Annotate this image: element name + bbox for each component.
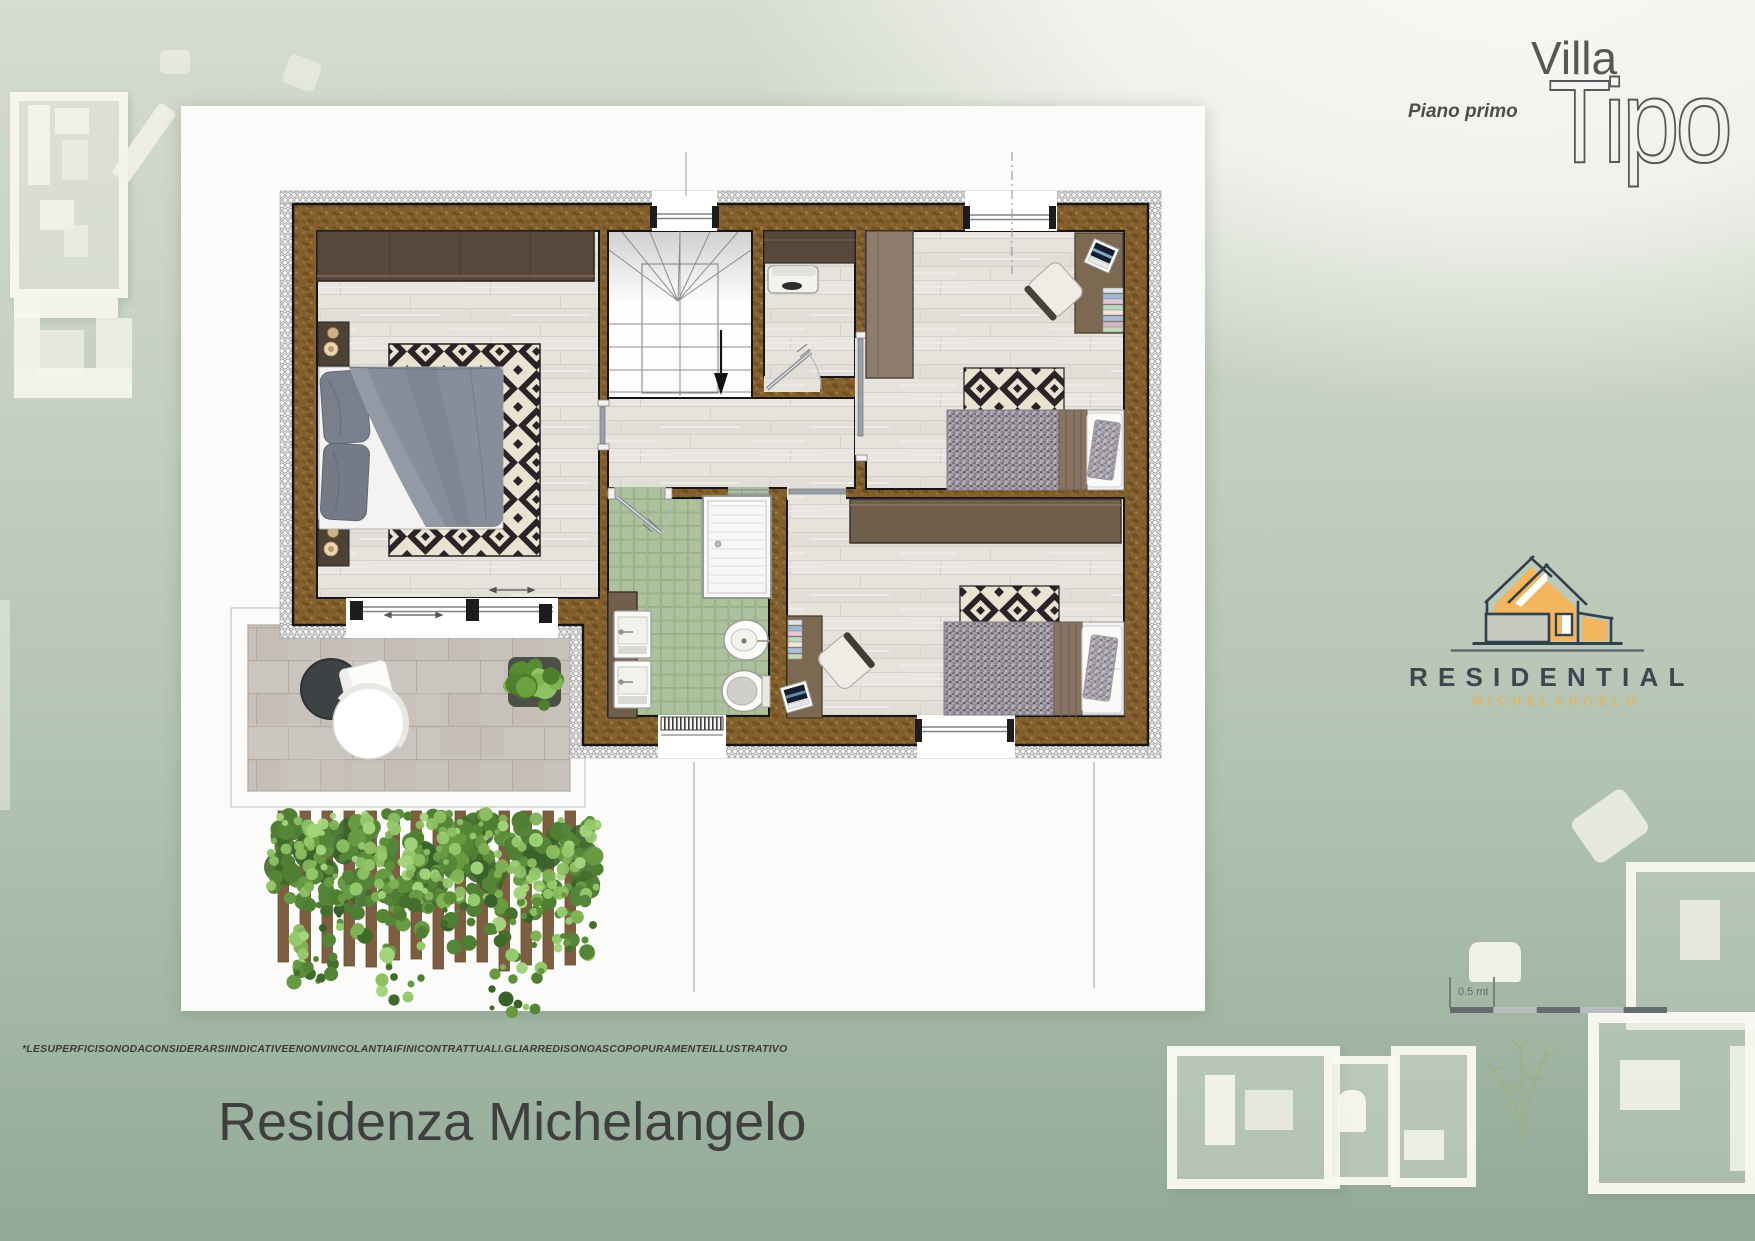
svg-text:0.5 mt: 0.5 mt — [1458, 986, 1489, 998]
